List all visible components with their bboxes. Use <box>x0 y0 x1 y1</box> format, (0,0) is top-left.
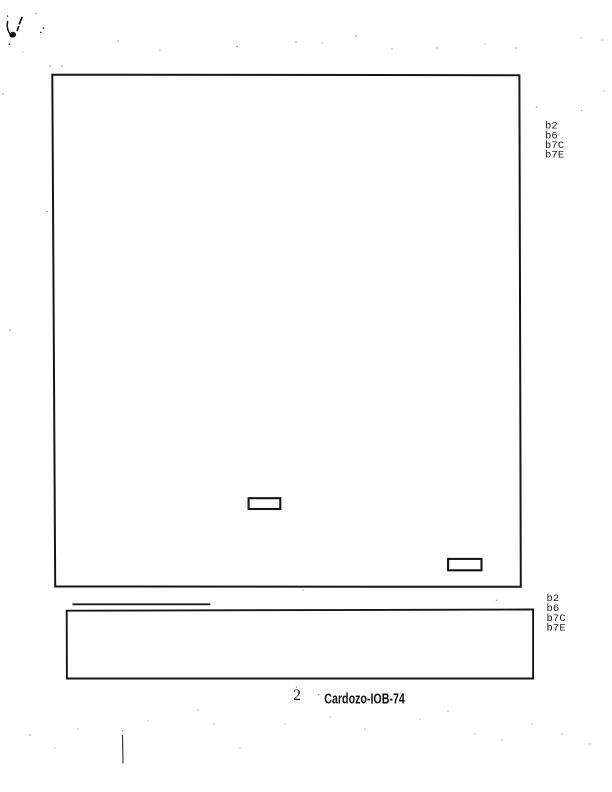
svg-text:2: 2 <box>293 687 301 704</box>
svg-text:b7E: b7E <box>547 623 566 635</box>
svg-text:b7E: b7E <box>545 150 564 162</box>
svg-text:Cardozo-IOB-74: Cardozo-IOB-74 <box>324 691 405 707</box>
